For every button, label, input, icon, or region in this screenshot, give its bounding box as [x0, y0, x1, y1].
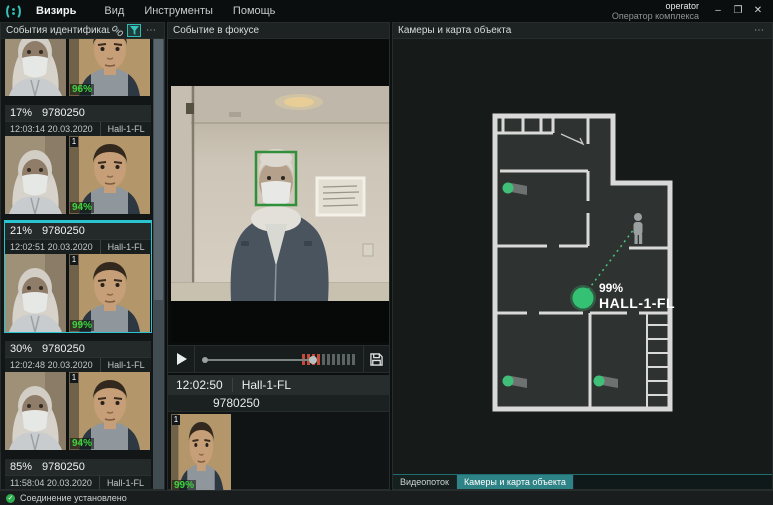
face-count-badge: 1 [70, 137, 78, 147]
face-count-badge: 1 [70, 373, 78, 383]
marker-label: HALL-1-FL [599, 295, 675, 311]
event-match-percent: 85% [10, 461, 32, 473]
slider-track[interactable] [203, 359, 315, 361]
menu-help[interactable]: Помощь [223, 0, 286, 22]
map-panel-header: Камеры и карта объекта ⋯ [393, 23, 772, 39]
tab-videostream[interactable]: Видеопоток [393, 475, 457, 489]
link-icon[interactable] [110, 24, 124, 37]
focus-thumbnail-zone: 1 99% [168, 412, 389, 489]
event-header-row: 85%9780250 [5, 459, 151, 475]
reference-face-thumbnail[interactable]: 1 99% [171, 414, 231, 492]
person-id: 9780250 [168, 395, 389, 412]
event-item[interactable]: 1 96% [4, 39, 152, 97]
similarity-percent: 94% [70, 438, 94, 449]
user-info: operator Оператор комплекса [612, 1, 709, 21]
app-window: Визирь Вид Инструменты Помощь operator О… [0, 0, 773, 505]
similarity-percent: 94% [70, 202, 94, 213]
marker-percent: 99% [599, 281, 623, 295]
face-count-badge: 1 [172, 415, 180, 425]
minimize-button[interactable]: – [709, 3, 727, 19]
event-face-pair: 1 99% [5, 254, 151, 332]
event-camera: Hall-1-FL [100, 122, 145, 136]
slider-start-dot [202, 357, 208, 363]
detection-marker[interactable] [573, 288, 594, 309]
events-panel-header: События идентификации ⋯ [1, 23, 164, 39]
captured-face-image [5, 39, 66, 96]
events-scrollbar[interactable] [153, 39, 164, 489]
face-count-badge: 1 [70, 255, 78, 265]
save-button[interactable] [363, 346, 389, 372]
scrollbar-thumb[interactable] [154, 39, 163, 300]
event-match-percent: 17% [10, 107, 32, 119]
menu-view[interactable]: Вид [94, 0, 134, 22]
event-timestamp: 12:03:14 20.03.2020 [5, 122, 93, 136]
user-role: Оператор комплекса [612, 11, 699, 21]
captured-face-image [5, 136, 66, 214]
user-name: operator [612, 1, 699, 11]
event-info-row: 12:02:50 Hall-1-FL [168, 375, 389, 395]
events-more-icon[interactable]: ⋯ [144, 25, 159, 36]
event-person-id: 9780250 [42, 107, 85, 119]
close-button[interactable]: ✕ [749, 3, 767, 19]
events-panel-title: События идентификации [6, 25, 110, 36]
event-item[interactable]: 21%9780250 12:02:51 20.03.2020 Hall-1-FL… [4, 220, 152, 333]
similarity-percent: 99% [70, 320, 94, 331]
event-item[interactable]: 30%9780250 12:02:48 20.03.2020 Hall-1-FL… [4, 338, 152, 451]
reference-face-image: 1 99% [69, 254, 150, 332]
event-person-id: 9780250 [42, 343, 85, 355]
video-frame [171, 86, 389, 342]
event-time: 12:02:50 [168, 378, 233, 392]
event-face-pair: 1 96% [5, 39, 151, 96]
connection-status-icon: ✓ [6, 494, 15, 503]
event-timestamp: 11:58:04 20.03.2020 [5, 476, 92, 489]
event-face-pair: 1 94% [5, 372, 151, 450]
event-person-id: 9780250 [42, 225, 85, 237]
connection-status-text: Соединение установлено [20, 493, 127, 503]
playback-controls [168, 345, 389, 373]
event-camera: Hall-1-FL [100, 240, 145, 254]
reference-face-image: 1 96% [69, 39, 150, 96]
event-meta-row: 12:02:48 20.03.2020 Hall-1-FL [5, 357, 151, 372]
event-header-row: 30%9780250 [5, 341, 151, 357]
similarity-percent: 96% [70, 84, 94, 95]
map-panel-title: Камеры и карта объекта [398, 25, 752, 36]
view-tabs: Видеопоток Камеры и карта объекта [393, 474, 772, 489]
event-camera-name: Hall-1-FL [233, 378, 291, 392]
event-match-percent: 30% [10, 343, 32, 355]
menu-vizir[interactable]: Визирь [26, 0, 86, 22]
event-header-row: 21%9780250 [5, 223, 151, 239]
captured-face-image [5, 372, 66, 450]
filter-icon[interactable] [127, 24, 141, 37]
window-controls: – ❐ ✕ [709, 3, 773, 19]
event-meta-row: 12:02:51 20.03.2020 Hall-1-FL [5, 239, 151, 254]
reference-face-image: 1 94% [69, 136, 150, 214]
focus-panel-title: Событие в фокусе [173, 25, 384, 36]
status-bar: ✓ Соединение установлено [0, 490, 773, 505]
identification-events-panel: События идентификации ⋯ [0, 22, 165, 490]
menu-bar: Визирь Вид Инструменты Помощь operator О… [0, 0, 773, 22]
focus-panel-header: Событие в фокусе [168, 23, 389, 39]
video-area [168, 39, 389, 345]
event-in-focus-panel: Событие в фокусе [167, 22, 390, 490]
event-timestamp: 12:02:51 20.03.2020 [5, 240, 93, 254]
event-camera: Hall-1-FL [100, 358, 145, 372]
tab-cameras-map[interactable]: Камеры и карта объекта [457, 475, 574, 489]
menu-tools[interactable]: Инструменты [134, 0, 223, 22]
slider-thumb[interactable] [309, 356, 317, 364]
event-header-row: 17%9780250 [5, 105, 151, 121]
timeline-slider[interactable] [203, 346, 294, 372]
reference-face-image: 1 94% [69, 372, 150, 450]
site-map[interactable]: 99% HALL-1-FL [393, 39, 772, 474]
event-meta-row: 11:58:04 20.03.2020 Hall-1-FL [5, 475, 151, 489]
play-button[interactable] [168, 346, 195, 372]
map-more-icon[interactable]: ⋯ [752, 25, 767, 36]
event-item[interactable]: 85%9780250 11:58:04 20.03.2020 Hall-1-FL… [4, 456, 152, 489]
app-logo-icon [0, 5, 26, 18]
event-match-percent: 21% [10, 225, 32, 237]
event-face-pair: 1 94% [5, 136, 151, 214]
event-meta-row: 12:03:14 20.03.2020 Hall-1-FL [5, 121, 151, 136]
cameras-map-panel: Камеры и карта объекта ⋯ [392, 22, 773, 490]
events-list: 1 96% 17%9780250 12:03:14 20.03.2020 Hal… [1, 39, 153, 489]
event-person-id: 9780250 [42, 461, 85, 473]
event-camera: Hall-1-FL [99, 476, 144, 489]
restore-button[interactable]: ❐ [729, 3, 747, 19]
event-item[interactable]: 17%9780250 12:03:14 20.03.2020 Hall-1-FL… [4, 102, 152, 215]
event-timestamp: 12:02:48 20.03.2020 [5, 358, 93, 372]
captured-face-image [5, 254, 66, 332]
